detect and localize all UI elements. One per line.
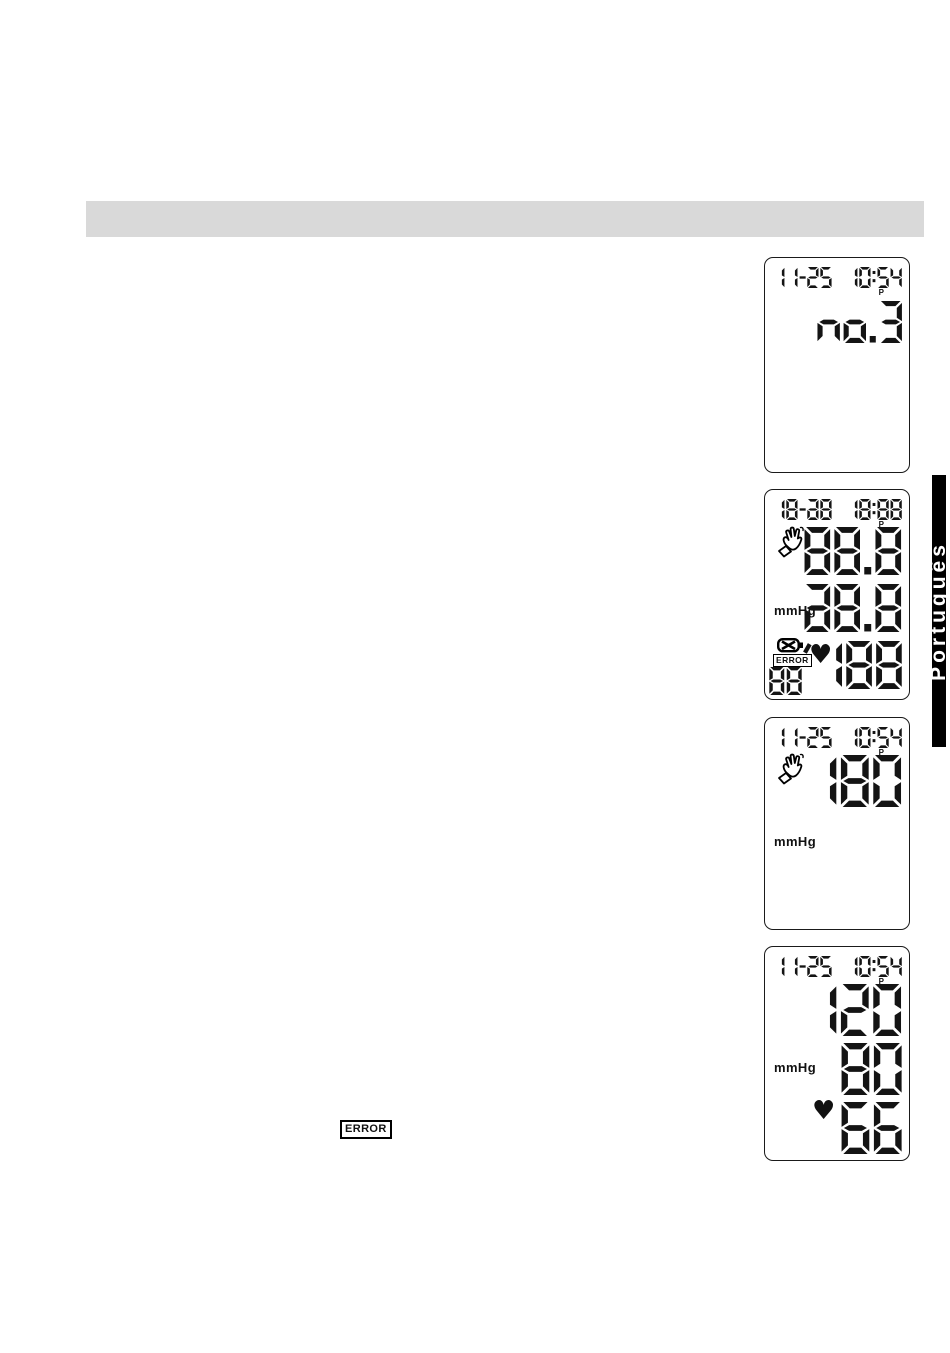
lcd-time	[846, 267, 902, 288]
lcd-panel-inflation: P mmHg	[764, 717, 910, 930]
mmhg-label: mmHg	[774, 835, 816, 848]
pulse-display	[841, 1102, 902, 1154]
datetime-row	[773, 267, 902, 288]
datetime-row	[773, 956, 902, 977]
systolic-display	[804, 527, 902, 575]
hand-icon	[775, 752, 807, 791]
lcd-time	[846, 956, 902, 977]
lcd-date	[773, 727, 832, 748]
lcd-time	[846, 727, 902, 748]
mmhg-label: mmHg	[774, 1061, 816, 1074]
datetime-row	[773, 727, 902, 748]
diastolic-display	[841, 1043, 902, 1095]
memory-count-display	[769, 667, 802, 695]
pulse-display	[802, 641, 902, 689]
lcd-panel-segment-test: P mmHg ERROR ♥	[764, 489, 910, 700]
pm-indicator: P	[879, 289, 884, 297]
hand-icon	[775, 525, 807, 564]
systolic-display	[808, 984, 902, 1036]
diastolic-display	[804, 584, 902, 632]
manual-page: P P mmHg E	[0, 0, 950, 1353]
inline-error-badge: ERROR	[340, 1120, 392, 1139]
pressure-display	[808, 755, 902, 807]
lcd-date	[773, 499, 832, 520]
memory-number-display	[817, 301, 902, 343]
lcd-date	[773, 956, 832, 977]
lcd-panel-memory-recall: P	[764, 257, 910, 473]
lcd-panel-result: P mmHg ♥	[764, 946, 910, 1161]
section-divider-bar	[86, 201, 924, 237]
datetime-row	[773, 499, 902, 520]
side-tab-label: Português	[932, 541, 946, 681]
lcd-time	[846, 499, 902, 520]
side-tab: Português	[932, 475, 946, 747]
heart-icon: ♥	[812, 1098, 835, 1124]
lcd-date	[773, 267, 832, 288]
